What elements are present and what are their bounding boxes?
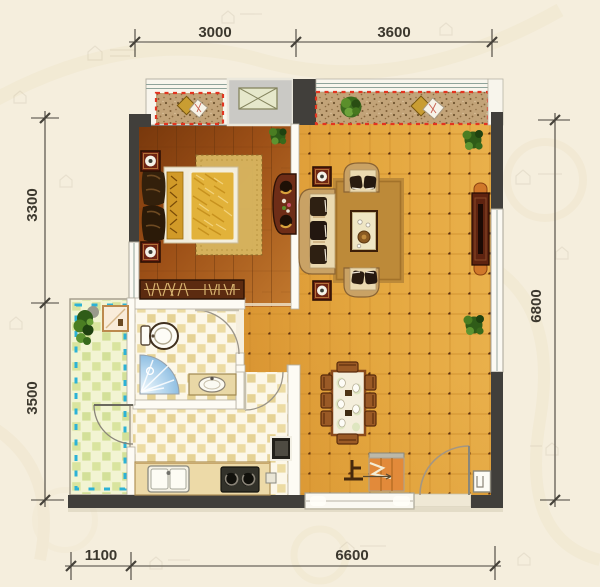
svg-text:1100: 1100 [85, 547, 118, 564]
svg-text:3300: 3300 [24, 188, 41, 221]
svg-text:3000: 3000 [198, 24, 231, 41]
svg-text:3600: 3600 [377, 24, 410, 41]
svg-text:3500: 3500 [24, 381, 41, 414]
svg-text:6800: 6800 [528, 289, 545, 322]
